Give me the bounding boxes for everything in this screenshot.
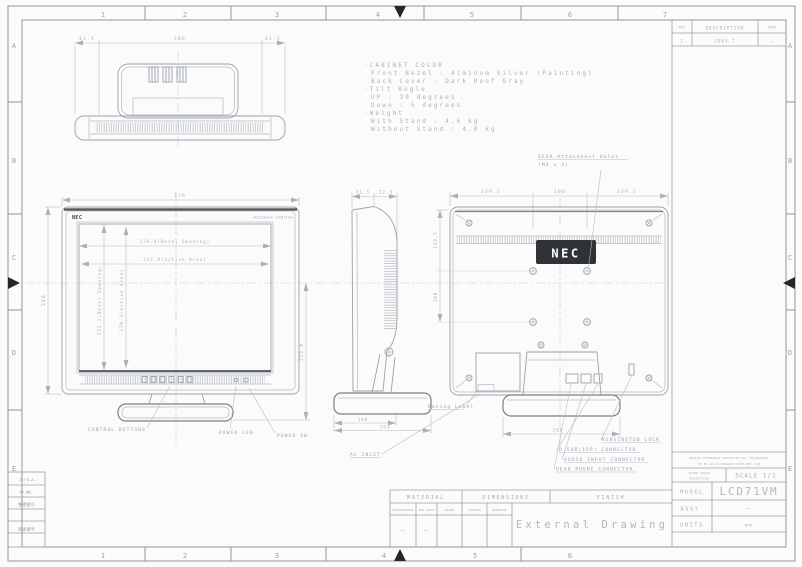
- zone-col-2b: 2: [183, 552, 187, 560]
- zone-col-3b: 3: [275, 552, 279, 560]
- signature-block: MATERIAL DIMENSIONS FINISH ENGINEERING E…: [390, 490, 672, 547]
- note-cabinet-color: ·CABINET COLOR: [364, 62, 444, 69]
- top-dim-center: 286: [174, 36, 186, 42]
- note-weight: ·Weight: [364, 110, 404, 117]
- label-vesa-sub: (M4 x 4): [538, 162, 569, 168]
- film-row-2: AP 無し: [20, 490, 34, 495]
- center-mark-right: [783, 277, 795, 289]
- center-mark-left: [8, 277, 20, 289]
- front-view: 379 340 NEC AccuSync LCD71vm 339.8(Bezel…: [41, 193, 310, 439]
- top-dim-left: 41.5: [79, 36, 95, 42]
- zone-col-2: 2: [183, 11, 187, 19]
- rear-view: 139.5 100 139.5 139.5 100 NEC: [433, 154, 668, 473]
- units-label: UNITS: [680, 523, 704, 529]
- scale-value: SCALE 1/1: [735, 473, 777, 480]
- zone-row-a-r: A: [788, 42, 793, 50]
- dim-active-area-h: 270.3(Active Area): [119, 268, 124, 331]
- assy-label: ASSY: [681, 507, 700, 513]
- title-block: UNLESS OTHERWISE SPECIFIED ALL TOLERANCE…: [672, 452, 786, 532]
- zone-col-3: 3: [275, 11, 279, 19]
- front-dim-stand-height: 223.9: [299, 343, 304, 361]
- zone-row-b-r: B: [788, 157, 792, 165]
- units-value: mm: [745, 524, 753, 529]
- finish-header: FINISH: [597, 495, 625, 501]
- rear-dim-l2: 100: [433, 292, 438, 303]
- side-view: 31.5 22.5 108 193 Rating Label AC INLET: [334, 190, 480, 459]
- rear-dim-t2: 100: [554, 189, 566, 195]
- label-ac-inlet: AC INLET: [350, 452, 381, 458]
- appd-header: APPD: [768, 26, 777, 30]
- label-power-sw: POWER SW: [277, 433, 308, 439]
- label-audio: AUDIO INPUT CONNECTOR: [564, 457, 645, 463]
- dimensions-header: DIMENSIONS: [482, 495, 529, 501]
- zone-col-1: 1: [101, 11, 105, 19]
- side-dim-top2: 22.5: [379, 190, 393, 195]
- zone-col-7: 7: [663, 11, 667, 19]
- sign-checked: CHECKED: [468, 508, 482, 512]
- zone-col-1b: 1: [101, 552, 105, 560]
- model-label: MODEL: [680, 490, 704, 496]
- top-view: 41.5 286 41.5: [75, 36, 285, 140]
- label-rating: Rating Label: [428, 404, 474, 410]
- label-vesa: VESA Attachment Holes: [538, 154, 619, 160]
- dim-bezel-opening-w: 339.8(Bezel Opening): [140, 239, 210, 244]
- film-block: フィルム AP 無し 整理番号 図面番号: [8, 472, 45, 547]
- note-back-cover: Back Cover : Dark Roof Gray: [371, 78, 525, 85]
- note-tilt-down: Down : 5 degrees: [371, 102, 462, 109]
- rev-appd: —: [770, 39, 774, 44]
- projection-label-2: PROJECTION: [689, 477, 708, 481]
- zone-row-d: D: [12, 349, 16, 357]
- film-row-1: フィルム: [18, 477, 35, 482]
- label-headphone: HEAD PHONE CONNECTOR: [556, 467, 633, 473]
- rev-number: 1: [680, 39, 684, 44]
- label-power-led: POWER LED: [219, 430, 254, 436]
- zone-row-c: C: [12, 254, 16, 262]
- side-dim-bot2: 193: [380, 425, 391, 430]
- zone-col-5b: 5: [473, 552, 477, 560]
- note-tilt-up: UP : 30 degrees: [371, 94, 457, 101]
- zone-row-b: B: [12, 157, 16, 165]
- label-control-buttons: CONTROL BUTTONS: [88, 427, 146, 433]
- assy-value: —: [747, 506, 752, 513]
- label-dsub: D-SUB(15P) CONNECTOR: [559, 447, 636, 453]
- sign-approved: APPROVED: [492, 508, 508, 512]
- dim-bezel-opening-h: 272.2(Bezel Opening): [97, 265, 102, 335]
- note-weight-with: With Stand : 4.6 kg: [371, 118, 480, 125]
- rev-description: 2003.7: [714, 39, 735, 44]
- dim-active-area-w: 337.9(Active Area): [143, 257, 206, 262]
- drawing-sheet: 1 2 3 4 5 6 7 1 2 3 4 5 6 A B C D E A B …: [0, 0, 802, 567]
- drawing-title: External Drawing: [516, 519, 668, 531]
- zone-col-4: 4: [376, 11, 380, 19]
- rear-dim-t3: 139.5: [617, 189, 637, 195]
- zone-row-a: A: [12, 42, 17, 50]
- zone-col-4b: 4: [382, 552, 386, 560]
- sign-dash-2: —: [424, 527, 429, 534]
- zone-row-e-r: E: [788, 465, 792, 473]
- side-dim-top1: 31.5: [356, 190, 370, 195]
- sign-eng-appd: ENG APPD: [419, 508, 435, 512]
- sign-dash-1: —: [401, 527, 406, 534]
- zone-col-6: 6: [568, 11, 572, 19]
- notes: ·CABINET COLOR Front Bezel : Alminum Sil…: [364, 62, 594, 133]
- rear-dim-l1: 139.5: [433, 231, 438, 249]
- center-mark-top: [394, 6, 406, 18]
- model-value: LCD71VM: [720, 485, 779, 498]
- material-header: MATERIAL: [407, 495, 445, 501]
- top-dim-right: 41.5: [265, 36, 281, 42]
- ac-inlet: [478, 385, 494, 392]
- front-dim-width: 379: [174, 193, 186, 199]
- tolerance-note-2: TO BE IN ACCORDANCE WITH NEC STD: [698, 462, 760, 466]
- model-badge: AccuSync LCD71vm: [254, 216, 293, 220]
- center-mark-bottom: [394, 549, 406, 561]
- desc-header: DESCRIPTION: [706, 26, 745, 31]
- note-weight-without: Without Stand : 4.0 kg: [371, 126, 497, 133]
- nec-logo-front: NEC: [72, 215, 82, 221]
- nec-logo-rear: NEC: [551, 247, 580, 261]
- sign-engineering: ENGINEERING: [392, 508, 413, 512]
- label-kensington: KENSINGTON LOCK: [602, 437, 660, 443]
- side-dim-bot1: 108: [358, 417, 369, 422]
- projection-label-1: THIRD ANGLE: [688, 471, 709, 475]
- note-tilt-angle: ·Tilt Angle: [364, 86, 427, 93]
- sign-drawn: DRAWN: [445, 508, 455, 512]
- tolerance-note-1: UNLESS OTHERWISE SPECIFIED ALL TOLERANCE…: [689, 456, 769, 460]
- note-front-bezel: Front Bezel : Alminum Silver (Painting): [371, 70, 594, 77]
- zone-col-5: 5: [470, 11, 474, 19]
- front-dim-height: 340: [41, 294, 47, 306]
- film-row-3: 整理番号: [18, 501, 35, 508]
- zone-row-c-r: C: [788, 254, 792, 262]
- rating-label-area: [476, 353, 520, 391]
- film-row-5: 図面番号: [18, 526, 35, 533]
- rev-header: REV: [679, 26, 686, 30]
- zone-col-6b: 6: [568, 552, 572, 560]
- rear-dim-t1: 139.5: [481, 189, 501, 195]
- zone-row-d-r: D: [788, 349, 792, 357]
